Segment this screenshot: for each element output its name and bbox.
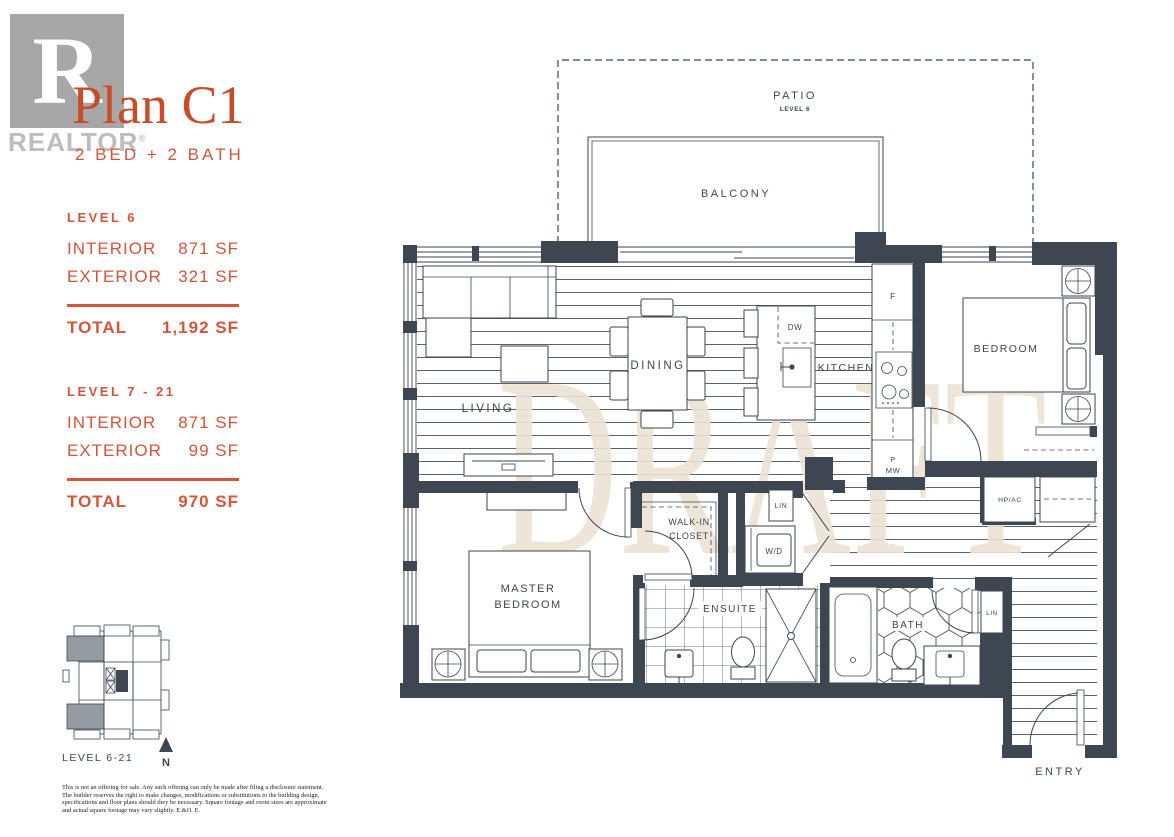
keyplan-caption: LEVEL 6-21 (62, 752, 133, 764)
patio-level-label: LEVEL 6 (780, 106, 810, 113)
tv-console (464, 454, 553, 476)
keyplan: LEVEL 6-21 N (62, 625, 173, 769)
patio-label: PATIO (773, 90, 817, 102)
pantry-label: MW (886, 466, 901, 475)
entry-label: ENTRY (1035, 766, 1085, 778)
pantry-label: P (890, 455, 896, 464)
walkin-closet-label: WALK-IN (668, 517, 709, 527)
keyplan-unit-highlight (67, 704, 104, 729)
bedroom-label: BEDROOM (974, 343, 1039, 355)
north-arrow-icon (159, 737, 173, 752)
keyplan-unit-highlight (67, 636, 104, 661)
linen-label: LIN (986, 610, 997, 617)
fridge-label: F (890, 291, 896, 301)
bath-label: BATH (892, 620, 924, 631)
walkin-closet-label: CLOSET (669, 531, 709, 541)
ensuite-label: ENSUITE (703, 604, 757, 615)
coffee-table (501, 346, 548, 382)
living-label: LIVING (462, 403, 515, 415)
master-bedroom-label: MASTER (501, 583, 556, 595)
master-bedroom-label: BEDROOM (494, 599, 561, 611)
dishwasher-label: DW (788, 323, 803, 332)
north-label: N (162, 757, 170, 769)
balcony-label: BALCONY (701, 188, 771, 200)
patio-outline (558, 60, 1033, 243)
floorplan-page: R REALTOR® Plan C1 2 BED + 2 BATH LEVEL … (0, 0, 1174, 837)
linen-label: LIN (775, 503, 788, 510)
floorplan-drawing: DRAFT (0, 0, 1174, 837)
master-bed (469, 551, 590, 677)
kitchen-island (744, 306, 815, 420)
heat-pump-label: HP/AC (998, 497, 1022, 504)
dining-label: DINING (630, 360, 685, 372)
washer-dryer-label: W/D (765, 547, 782, 556)
kitchen-label: KITCHEN (818, 362, 875, 374)
